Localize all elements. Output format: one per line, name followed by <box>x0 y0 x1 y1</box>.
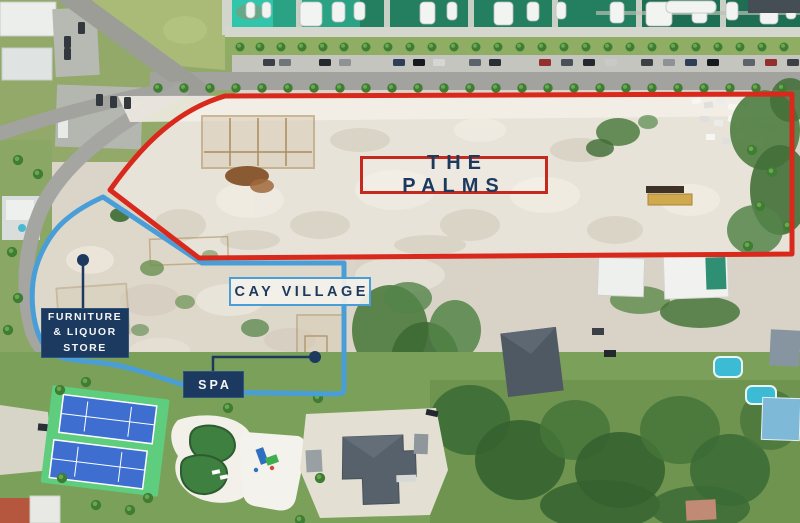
cay-village-text: CAY VILLAGE <box>231 284 369 300</box>
label-cay-village: CAY VILLAGE <box>229 277 371 306</box>
pool <box>714 357 742 377</box>
label-spa: SPA <box>183 371 244 398</box>
dock-structure <box>748 0 800 13</box>
shed <box>414 434 429 454</box>
marina <box>222 0 800 38</box>
parked-car <box>604 350 616 357</box>
bottom-left-homes <box>0 496 60 523</box>
quay <box>225 27 800 38</box>
aerial-site-map: THE PALMS CAY VILLAGE FURNITURE & LIQUOR… <box>0 0 800 523</box>
spa-text: SPA <box>195 378 232 392</box>
shed <box>305 450 322 473</box>
furniture-line2: & LIQUOR <box>53 325 116 340</box>
large-yacht <box>666 1 716 13</box>
spa-dot <box>309 351 321 363</box>
label-the-palms: THE PALMS <box>360 156 548 194</box>
aerial-photo <box>0 0 800 523</box>
label-furniture-liquor-store: FURNITURE & LIQUOR STORE <box>41 308 129 358</box>
furniture-line1: FURNITURE <box>48 310 122 325</box>
parked-car <box>592 328 604 335</box>
furniture-store-dot <box>77 254 89 266</box>
the-palms-text: THE PALMS <box>363 152 545 198</box>
furniture-line3: STORE <box>63 341 106 356</box>
